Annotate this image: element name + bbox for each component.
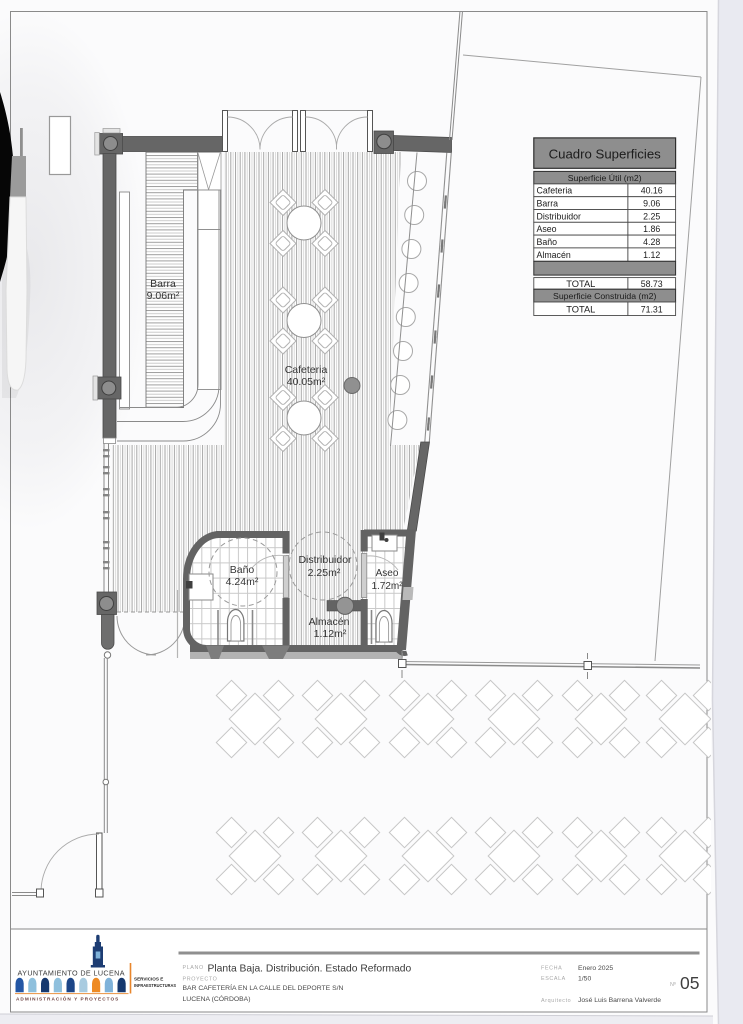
svg-text:INFRAESTRUCTURAS: INFRAESTRUCTURAS <box>134 983 176 988</box>
svg-text:40.16: 40.16 <box>641 186 663 196</box>
svg-text:71.31: 71.31 <box>641 304 663 314</box>
svg-text:2.25: 2.25 <box>643 211 660 221</box>
svg-text:58.73: 58.73 <box>641 279 663 289</box>
svg-text:FECHA: FECHA <box>541 966 562 972</box>
svg-text:Almacén: Almacén <box>537 250 571 260</box>
svg-text:Distribuidor: Distribuidor <box>537 211 582 221</box>
svg-text:Superficie Útil (m2): Superficie Útil (m2) <box>568 173 642 183</box>
svg-text:Barra: Barra <box>150 278 176 290</box>
svg-text:Baño: Baño <box>230 564 255 576</box>
svg-text:9.06m²: 9.06m² <box>147 290 180 302</box>
svg-text:Aseo: Aseo <box>537 224 557 234</box>
svg-text:Almacén: Almacén <box>309 616 350 628</box>
svg-text:1.12m²: 1.12m² <box>314 628 347 640</box>
svg-text:TOTAL: TOTAL <box>566 304 595 314</box>
svg-text:4.28: 4.28 <box>643 237 660 247</box>
svg-text:4.24m²: 4.24m² <box>226 576 259 588</box>
svg-text:Distribuidor: Distribuidor <box>298 554 352 566</box>
svg-text:ESCALA: ESCALA <box>541 976 566 982</box>
svg-text:40.05m²: 40.05m² <box>287 376 326 388</box>
svg-text:1.12: 1.12 <box>643 250 660 260</box>
svg-text:Planta Baja. Distribución. Est: Planta Baja. Distribución. Estado Reform… <box>208 964 412 975</box>
svg-text:ADMINISTRACIÓN Y PROYECTOS: ADMINISTRACIÓN Y PROYECTOS <box>16 995 119 1002</box>
svg-text:LUCENA (CÓRDOBA): LUCENA (CÓRDOBA) <box>183 994 251 1003</box>
svg-text:AYUNTAMIENTO DE LUCENA: AYUNTAMIENTO DE LUCENA <box>18 969 125 978</box>
svg-text:2.25m²: 2.25m² <box>308 567 341 579</box>
svg-text:Barra: Barra <box>537 199 559 209</box>
svg-text:José Luis Barrena Valverde: José Luis Barrena Valverde <box>578 997 661 1004</box>
svg-text:Enero 2025: Enero 2025 <box>578 965 613 972</box>
svg-text:Arquitecto: Arquitecto <box>541 998 571 1004</box>
svg-text:1.72m²: 1.72m² <box>371 581 403 592</box>
svg-text:Nº: Nº <box>670 982 676 988</box>
svg-text:Baño: Baño <box>537 237 558 247</box>
svg-text:TOTAL: TOTAL <box>566 279 595 289</box>
svg-text:SERVICIOS E: SERVICIOS E <box>134 977 163 982</box>
svg-text:05: 05 <box>680 973 699 993</box>
svg-text:1.86: 1.86 <box>643 224 660 234</box>
svg-text:9.06: 9.06 <box>643 199 660 209</box>
svg-text:Superficie Construida (m2): Superficie Construida (m2) <box>553 291 656 301</box>
svg-text:Cuadro Superficies: Cuadro Superficies <box>549 147 662 162</box>
svg-text:PLANO: PLANO <box>183 965 204 971</box>
svg-text:PROYECTO: PROYECTO <box>183 977 218 983</box>
svg-text:BAR CAFETERÍA EN LA CALLE DEL: BAR CAFETERÍA EN LA CALLE DEL DEPORTE S/… <box>183 983 344 992</box>
svg-text:1/50: 1/50 <box>578 976 591 983</box>
svg-text:Aseo: Aseo <box>376 568 399 579</box>
svg-text:Cafeteria: Cafeteria <box>285 364 328 376</box>
svg-text:Cafeteria: Cafeteria <box>537 186 573 196</box>
